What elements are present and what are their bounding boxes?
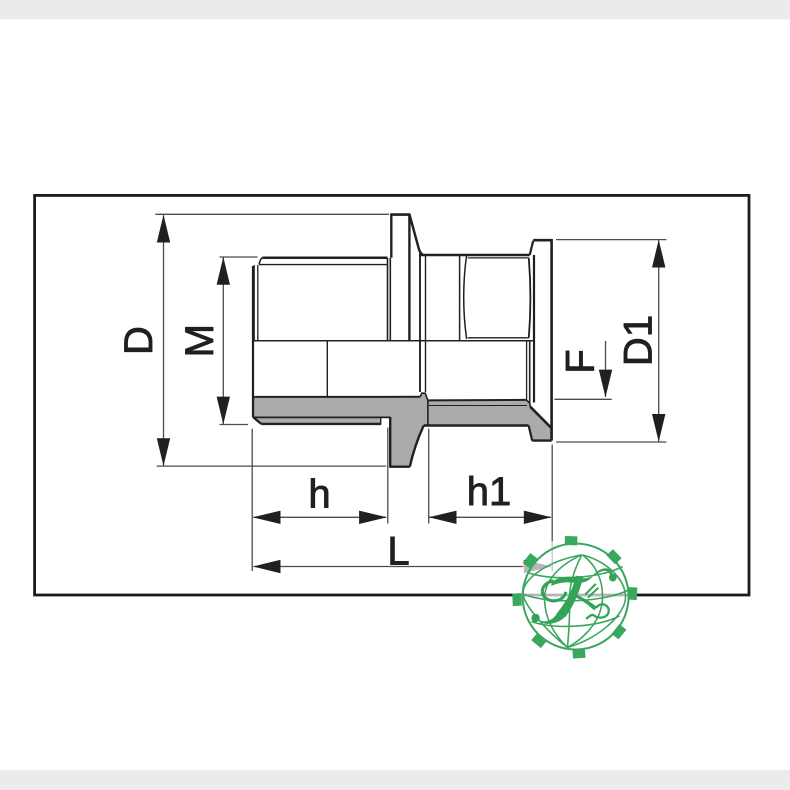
svg-text:h1: h1 — [467, 470, 512, 514]
svg-text:h: h — [308, 473, 330, 517]
svg-text:M: M — [178, 324, 222, 357]
svg-text:D: D — [117, 326, 161, 355]
svg-text:D1: D1 — [617, 315, 661, 366]
svg-text:L: L — [387, 530, 409, 574]
svg-text:F: F — [559, 349, 603, 373]
